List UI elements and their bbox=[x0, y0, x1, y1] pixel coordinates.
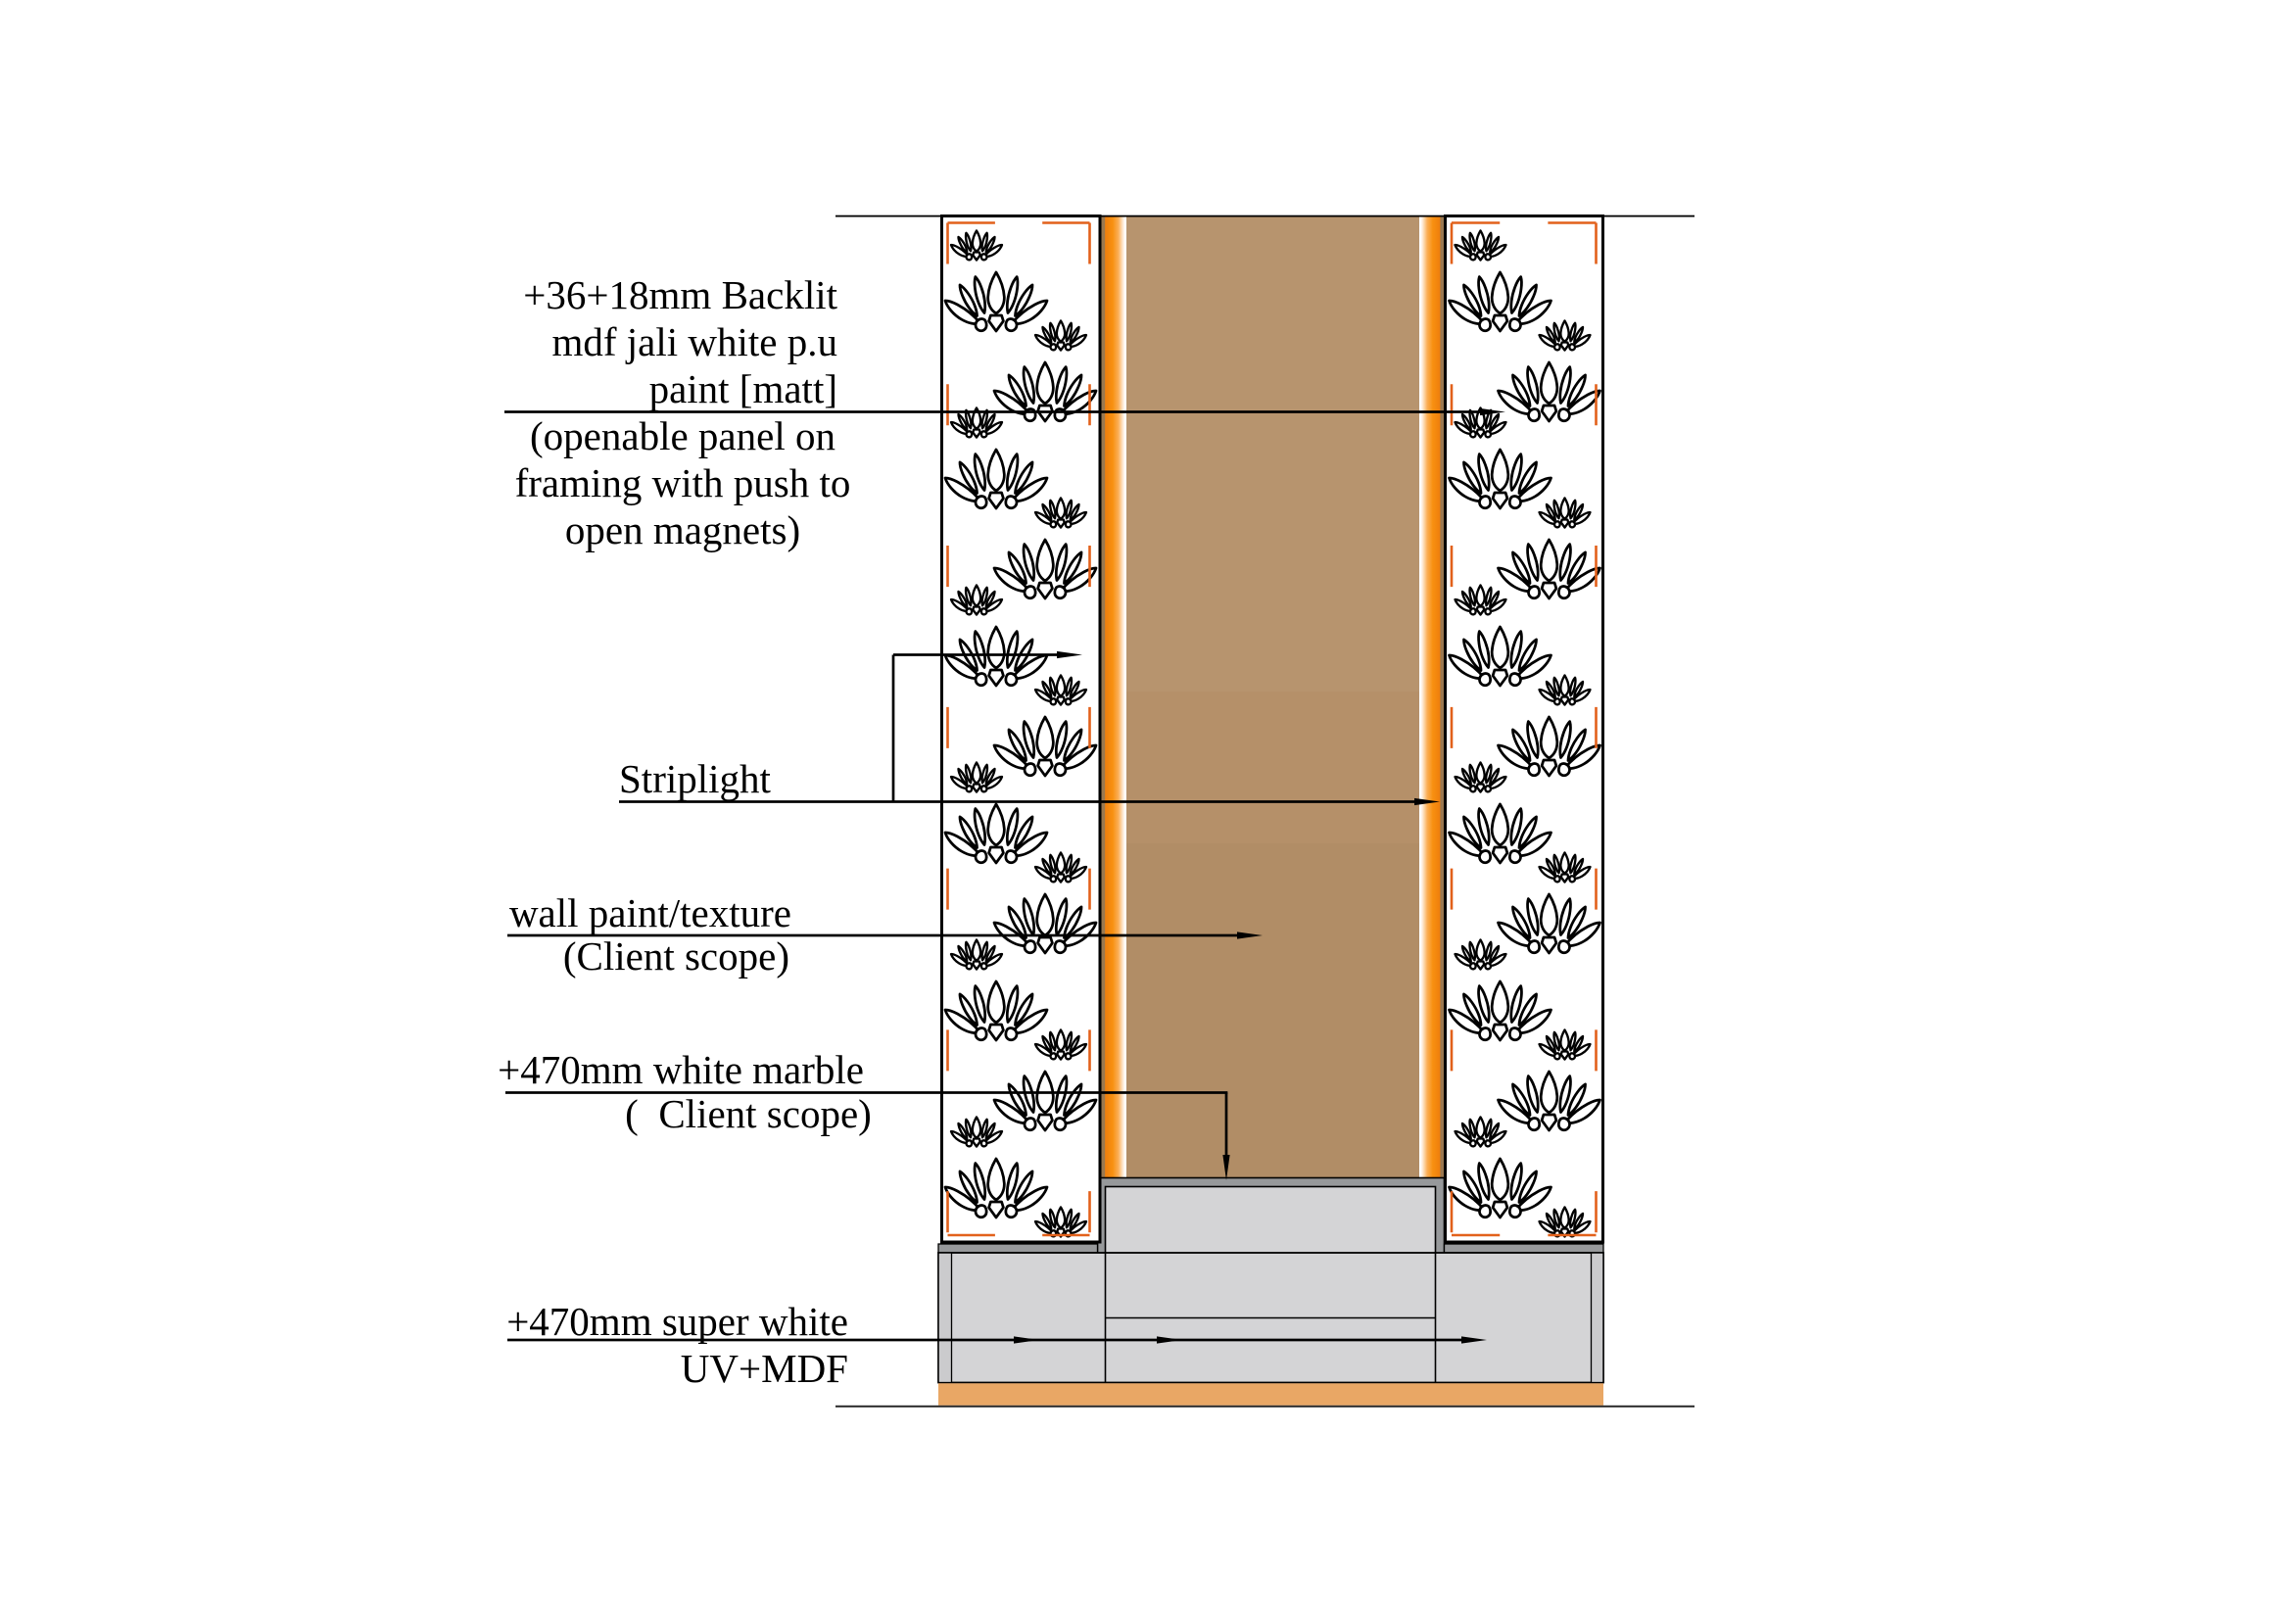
svg-text:+470mm super white: +470mm super white bbox=[506, 1299, 848, 1344]
svg-text:paint [matt]: paint [matt] bbox=[649, 366, 837, 411]
svg-text:mdf jali white p.u: mdf jali white p.u bbox=[551, 319, 837, 364]
svg-text:Striplight: Striplight bbox=[619, 756, 772, 801]
svg-text:( Client scope): ( Client scope) bbox=[625, 1091, 872, 1136]
svg-text:+36+18mm Backlit: +36+18mm Backlit bbox=[523, 272, 837, 317]
svg-text:UV+MDF: UV+MDF bbox=[681, 1346, 848, 1391]
svg-text:framing with push to: framing with push to bbox=[515, 460, 851, 505]
svg-text:(Client scope): (Client scope) bbox=[563, 933, 789, 979]
svg-text:+470mm white marble: +470mm white marble bbox=[498, 1047, 864, 1092]
svg-text:(openable panel on: (openable panel on bbox=[530, 413, 835, 458]
svg-text:open magnets): open magnets) bbox=[565, 507, 800, 552]
svg-text:wall paint/texture: wall paint/texture bbox=[509, 890, 791, 935]
